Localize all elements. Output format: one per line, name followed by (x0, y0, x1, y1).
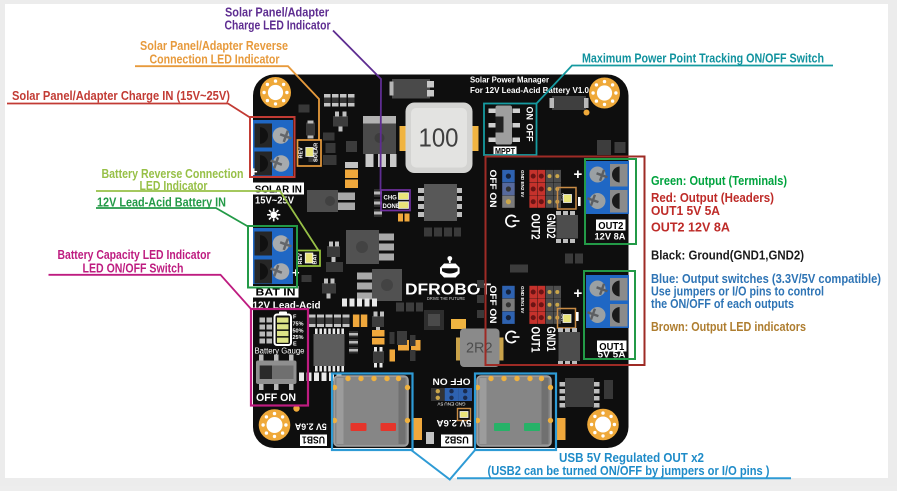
svg-text:Green: Output (Terminals): Green: Output (Terminals) (651, 173, 787, 188)
svg-text:Battery Capacity LED Indicator: Battery Capacity LED Indicator (58, 247, 211, 262)
svg-text:REV: REV (299, 147, 305, 159)
svg-text:USB1: USB1 (302, 434, 325, 445)
svg-text:OFF ON: OFF ON (256, 392, 296, 404)
svg-text:OFF ON: OFF ON (487, 170, 498, 208)
svg-text:Solar Power Manager: Solar Power Manager (470, 76, 549, 85)
svg-text:12V Lead-Acid Battery IN: 12V Lead-Acid Battery IN (97, 195, 226, 210)
svg-text:REV: REV (298, 253, 304, 265)
svg-text:DONE: DONE (383, 204, 400, 210)
svg-text:OUT2: OUT2 (529, 214, 541, 240)
svg-text:OFF: OFF (525, 124, 535, 142)
svg-text:OFF ON: OFF ON (487, 286, 498, 324)
svg-text:100: 100 (419, 123, 459, 153)
svg-text:(USB2 can be turned ON/OFF by: (USB2 can be turned ON/OFF by jumpers or… (488, 463, 770, 478)
svg-text:For 12V Lead-Acid Battery V1.0: For 12V Lead-Acid Battery V1.0 (470, 86, 590, 95)
svg-text:GND2: GND2 (544, 214, 556, 239)
svg-text:BAT: BAT (313, 253, 319, 265)
svg-text:Brown: Output LED indicators: Brown: Output LED indicators (651, 319, 806, 334)
svg-text:GND1: GND1 (544, 327, 556, 352)
svg-text:Charge LED Indicator: Charge LED Indicator (225, 18, 331, 33)
svg-text:Solar Panel/Adapter Charge IN: Solar Panel/Adapter Charge IN (15V~25V) (12, 88, 230, 103)
svg-text:2R2: 2R2 (466, 340, 493, 357)
svg-text:LED Indicator: LED Indicator (140, 178, 208, 193)
svg-text:ON: ON (525, 107, 535, 121)
svg-text:ON1: ON1 (560, 314, 564, 322)
svg-text:Battery Gauge: Battery Gauge (255, 347, 306, 356)
svg-text:Connection LED Indicator: Connection LED Indicator (150, 52, 280, 67)
svg-text:GND EN2 5V: GND EN2 5V (520, 170, 525, 198)
svg-text:5V 2.6A: 5V 2.6A (295, 421, 327, 432)
svg-text:OFF ON: OFF ON (432, 376, 470, 387)
svg-text:5V 2.6A: 5V 2.6A (436, 417, 471, 428)
svg-text:Maximum Power Point Tracking O: Maximum Power Point Tracking ON/OFF Swit… (582, 50, 824, 65)
svg-text:+: + (574, 166, 583, 183)
svg-text:OUT1 5V 5A: OUT1 5V 5A (651, 203, 721, 218)
svg-text:25%: 25% (293, 335, 304, 341)
svg-text:50%: 50% (293, 328, 304, 334)
svg-text:OUT2: OUT2 (598, 221, 623, 232)
svg-text:GND ENU 5V: GND ENU 5V (437, 402, 466, 407)
svg-text:SOLAR: SOLAR (314, 143, 320, 162)
svg-text:5V 5A: 5V 5A (598, 350, 626, 361)
svg-text:ON2: ON2 (561, 193, 565, 201)
svg-text:OUT2 12V 8A: OUT2 12V 8A (651, 219, 731, 234)
svg-text:the ON/OFF of each outputs: the ON/OFF of each outputs (651, 296, 794, 311)
svg-text:GND EN1 5V: GND EN1 5V (520, 286, 525, 314)
svg-text:DRIVE THE FUTURE: DRIVE THE FUTURE (427, 296, 465, 301)
svg-text:12V 8A: 12V 8A (595, 232, 626, 243)
svg-text:OUT1: OUT1 (529, 327, 541, 354)
svg-text:CHG: CHG (384, 196, 398, 202)
svg-text:+: + (574, 285, 583, 302)
svg-text:USB2: USB2 (444, 434, 468, 445)
svg-text:75%: 75% (293, 322, 304, 328)
svg-text:LED ON/OFF Switch: LED ON/OFF Switch (83, 261, 184, 276)
svg-text:SOLAR IN: SOLAR IN (255, 183, 302, 195)
svg-text:Black: Ground(GND1,GND2): Black: Ground(GND1,GND2) (651, 248, 804, 263)
